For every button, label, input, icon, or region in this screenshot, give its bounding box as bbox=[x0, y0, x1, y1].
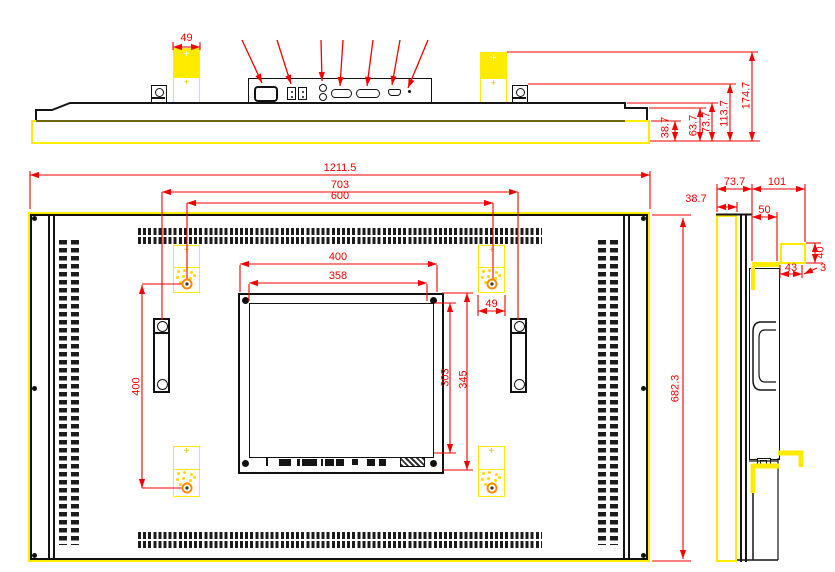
panel-connector bbox=[379, 459, 386, 466]
audio-jack-2 bbox=[319, 93, 327, 101]
panel-screw bbox=[242, 297, 249, 304]
dim-label-rear-bracket-width: 49 bbox=[478, 299, 505, 310]
dim-label-overall-height: 682.3 bbox=[671, 372, 682, 406]
dim-label-depth-mount: 174.7 bbox=[742, 80, 753, 112]
audio-jack-1 bbox=[319, 84, 327, 92]
vent-right-column bbox=[598, 240, 606, 545]
panel-connector bbox=[367, 459, 375, 466]
side-body bbox=[749, 268, 780, 460]
screw bbox=[32, 386, 37, 391]
mount-bracket-lower: + bbox=[174, 78, 199, 103]
screw bbox=[32, 553, 37, 558]
top-view-bezel bbox=[31, 120, 650, 144]
vesa-hole-pattern bbox=[174, 470, 199, 497]
vesa-hole-pattern bbox=[479, 268, 504, 293]
vent-top-row bbox=[138, 237, 542, 244]
vesa-bracket-top-right: + bbox=[478, 245, 505, 293]
screw bbox=[641, 216, 646, 221]
dim-label-panel-width: 400 bbox=[308, 252, 368, 263]
dim-label-hook-lip: 3 bbox=[818, 263, 828, 274]
vent-bottom-row bbox=[138, 532, 542, 539]
vent-top-row bbox=[138, 228, 542, 235]
hdmi-port bbox=[388, 89, 401, 96]
dim-label-vesa-width: 600 bbox=[312, 191, 368, 202]
vesa-bracket-top-left: + bbox=[173, 245, 200, 293]
vent-right-column bbox=[610, 240, 618, 545]
dim-label-hook-height: 40 bbox=[816, 243, 827, 263]
dim-label-panel-height: 345 bbox=[459, 367, 470, 393]
handle-top-bracket-right bbox=[512, 85, 528, 103]
mount-bracket-top-right: + + bbox=[480, 52, 507, 103]
usb-port-2 bbox=[298, 87, 307, 100]
panel-label-area bbox=[400, 457, 425, 467]
side-mount-hook-top bbox=[780, 243, 806, 264]
dim-label-screen-height: 303 bbox=[441, 365, 452, 391]
dvi-port bbox=[356, 89, 380, 98]
vesa-bracket-bottom-left: + bbox=[173, 446, 200, 497]
engineering-drawing-canvas: + + + + + bbox=[0, 0, 835, 572]
screen bbox=[249, 303, 434, 458]
top-view-profile bbox=[36, 103, 647, 121]
panel-screw bbox=[430, 460, 437, 467]
dim-label-vesa-height: 400 bbox=[132, 374, 143, 400]
panel-connector bbox=[352, 459, 358, 465]
usb-port-1 bbox=[287, 87, 296, 100]
mount-bracket-upper: + bbox=[174, 49, 199, 78]
panel-connector bbox=[321, 459, 323, 466]
mount-bracket-top-left: + + bbox=[173, 48, 200, 103]
panel-screw bbox=[242, 460, 249, 467]
dim-label-depth-bezel: 38.7 bbox=[661, 115, 672, 141]
dim-label-side-total-depth: 101 bbox=[755, 177, 799, 188]
panel-connector bbox=[336, 459, 344, 466]
power-led bbox=[408, 90, 411, 93]
vesa-bracket-bottom-right: + bbox=[478, 446, 505, 497]
vent-bottom-row bbox=[138, 541, 542, 548]
dim-label-depth-top: 73.7 bbox=[702, 110, 713, 136]
dim-label-side-body-depth: 50 bbox=[752, 205, 777, 216]
vent-left-column bbox=[59, 240, 67, 545]
side-bezel bbox=[716, 215, 737, 562]
panel-screw bbox=[430, 297, 437, 304]
dim-label-hook-width: 43 bbox=[780, 263, 802, 274]
vga-port bbox=[331, 89, 352, 98]
panel-connector bbox=[302, 459, 317, 466]
vent-left-column bbox=[71, 240, 79, 545]
handle-top-bracket-left bbox=[151, 85, 167, 103]
dim-label-depth-step: 63.7 bbox=[689, 113, 700, 139]
dim-label-overall-width: 1211.5 bbox=[302, 163, 378, 174]
dim-label-screen-width: 358 bbox=[308, 271, 368, 282]
panel-connector bbox=[266, 458, 268, 466]
panel-connector bbox=[297, 459, 300, 466]
dim-label-side-bezel-depth: 38.7 bbox=[683, 194, 709, 205]
mount-bracket-upper: + bbox=[481, 53, 506, 79]
vesa-hole-pattern bbox=[174, 268, 199, 293]
screw bbox=[641, 386, 646, 391]
dim-label-depth-handle: 113.7 bbox=[720, 98, 731, 130]
mount-bracket-lower: + bbox=[481, 79, 506, 103]
panel-connector bbox=[279, 459, 291, 466]
screw bbox=[32, 216, 37, 221]
handle-hole bbox=[155, 88, 164, 97]
dim-label-side-front-depth: 73.7 bbox=[718, 177, 751, 188]
screw bbox=[641, 553, 646, 558]
dim-label-top-bracket-width: 49 bbox=[173, 33, 200, 44]
handle-hole bbox=[516, 88, 525, 97]
power-inlet bbox=[254, 86, 278, 102]
panel-connector bbox=[325, 459, 334, 466]
vesa-hole-pattern bbox=[479, 470, 504, 497]
